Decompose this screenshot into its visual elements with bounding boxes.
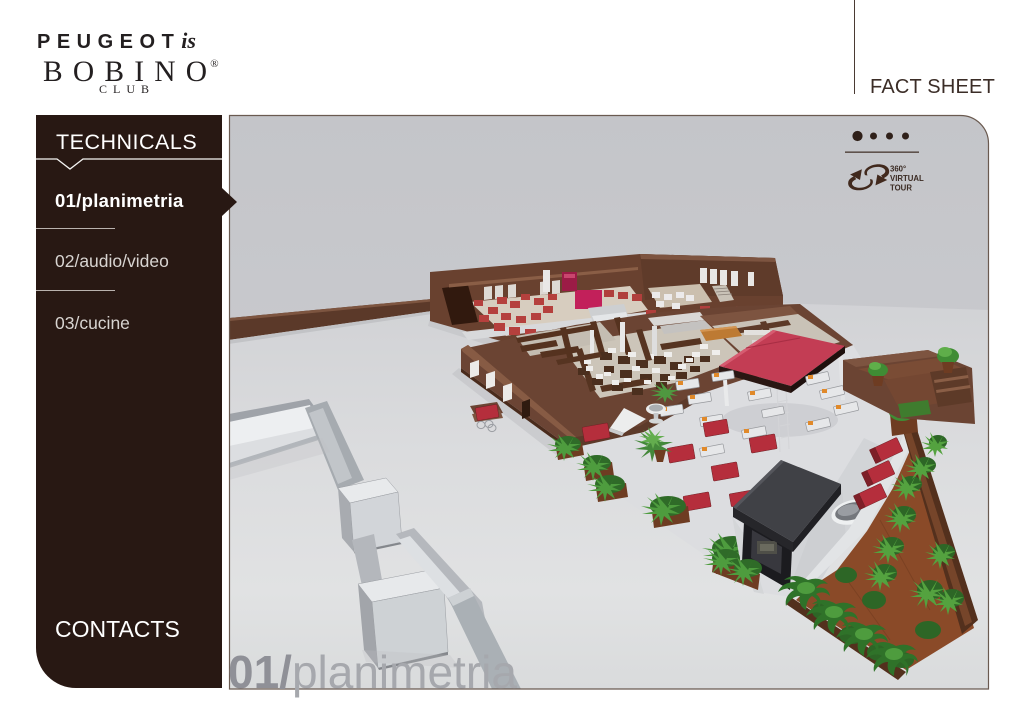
svg-text:TOUR: TOUR — [890, 184, 912, 193]
svg-text:360°: 360° — [890, 165, 906, 174]
svg-text:VIRTUAL: VIRTUAL — [890, 174, 924, 183]
